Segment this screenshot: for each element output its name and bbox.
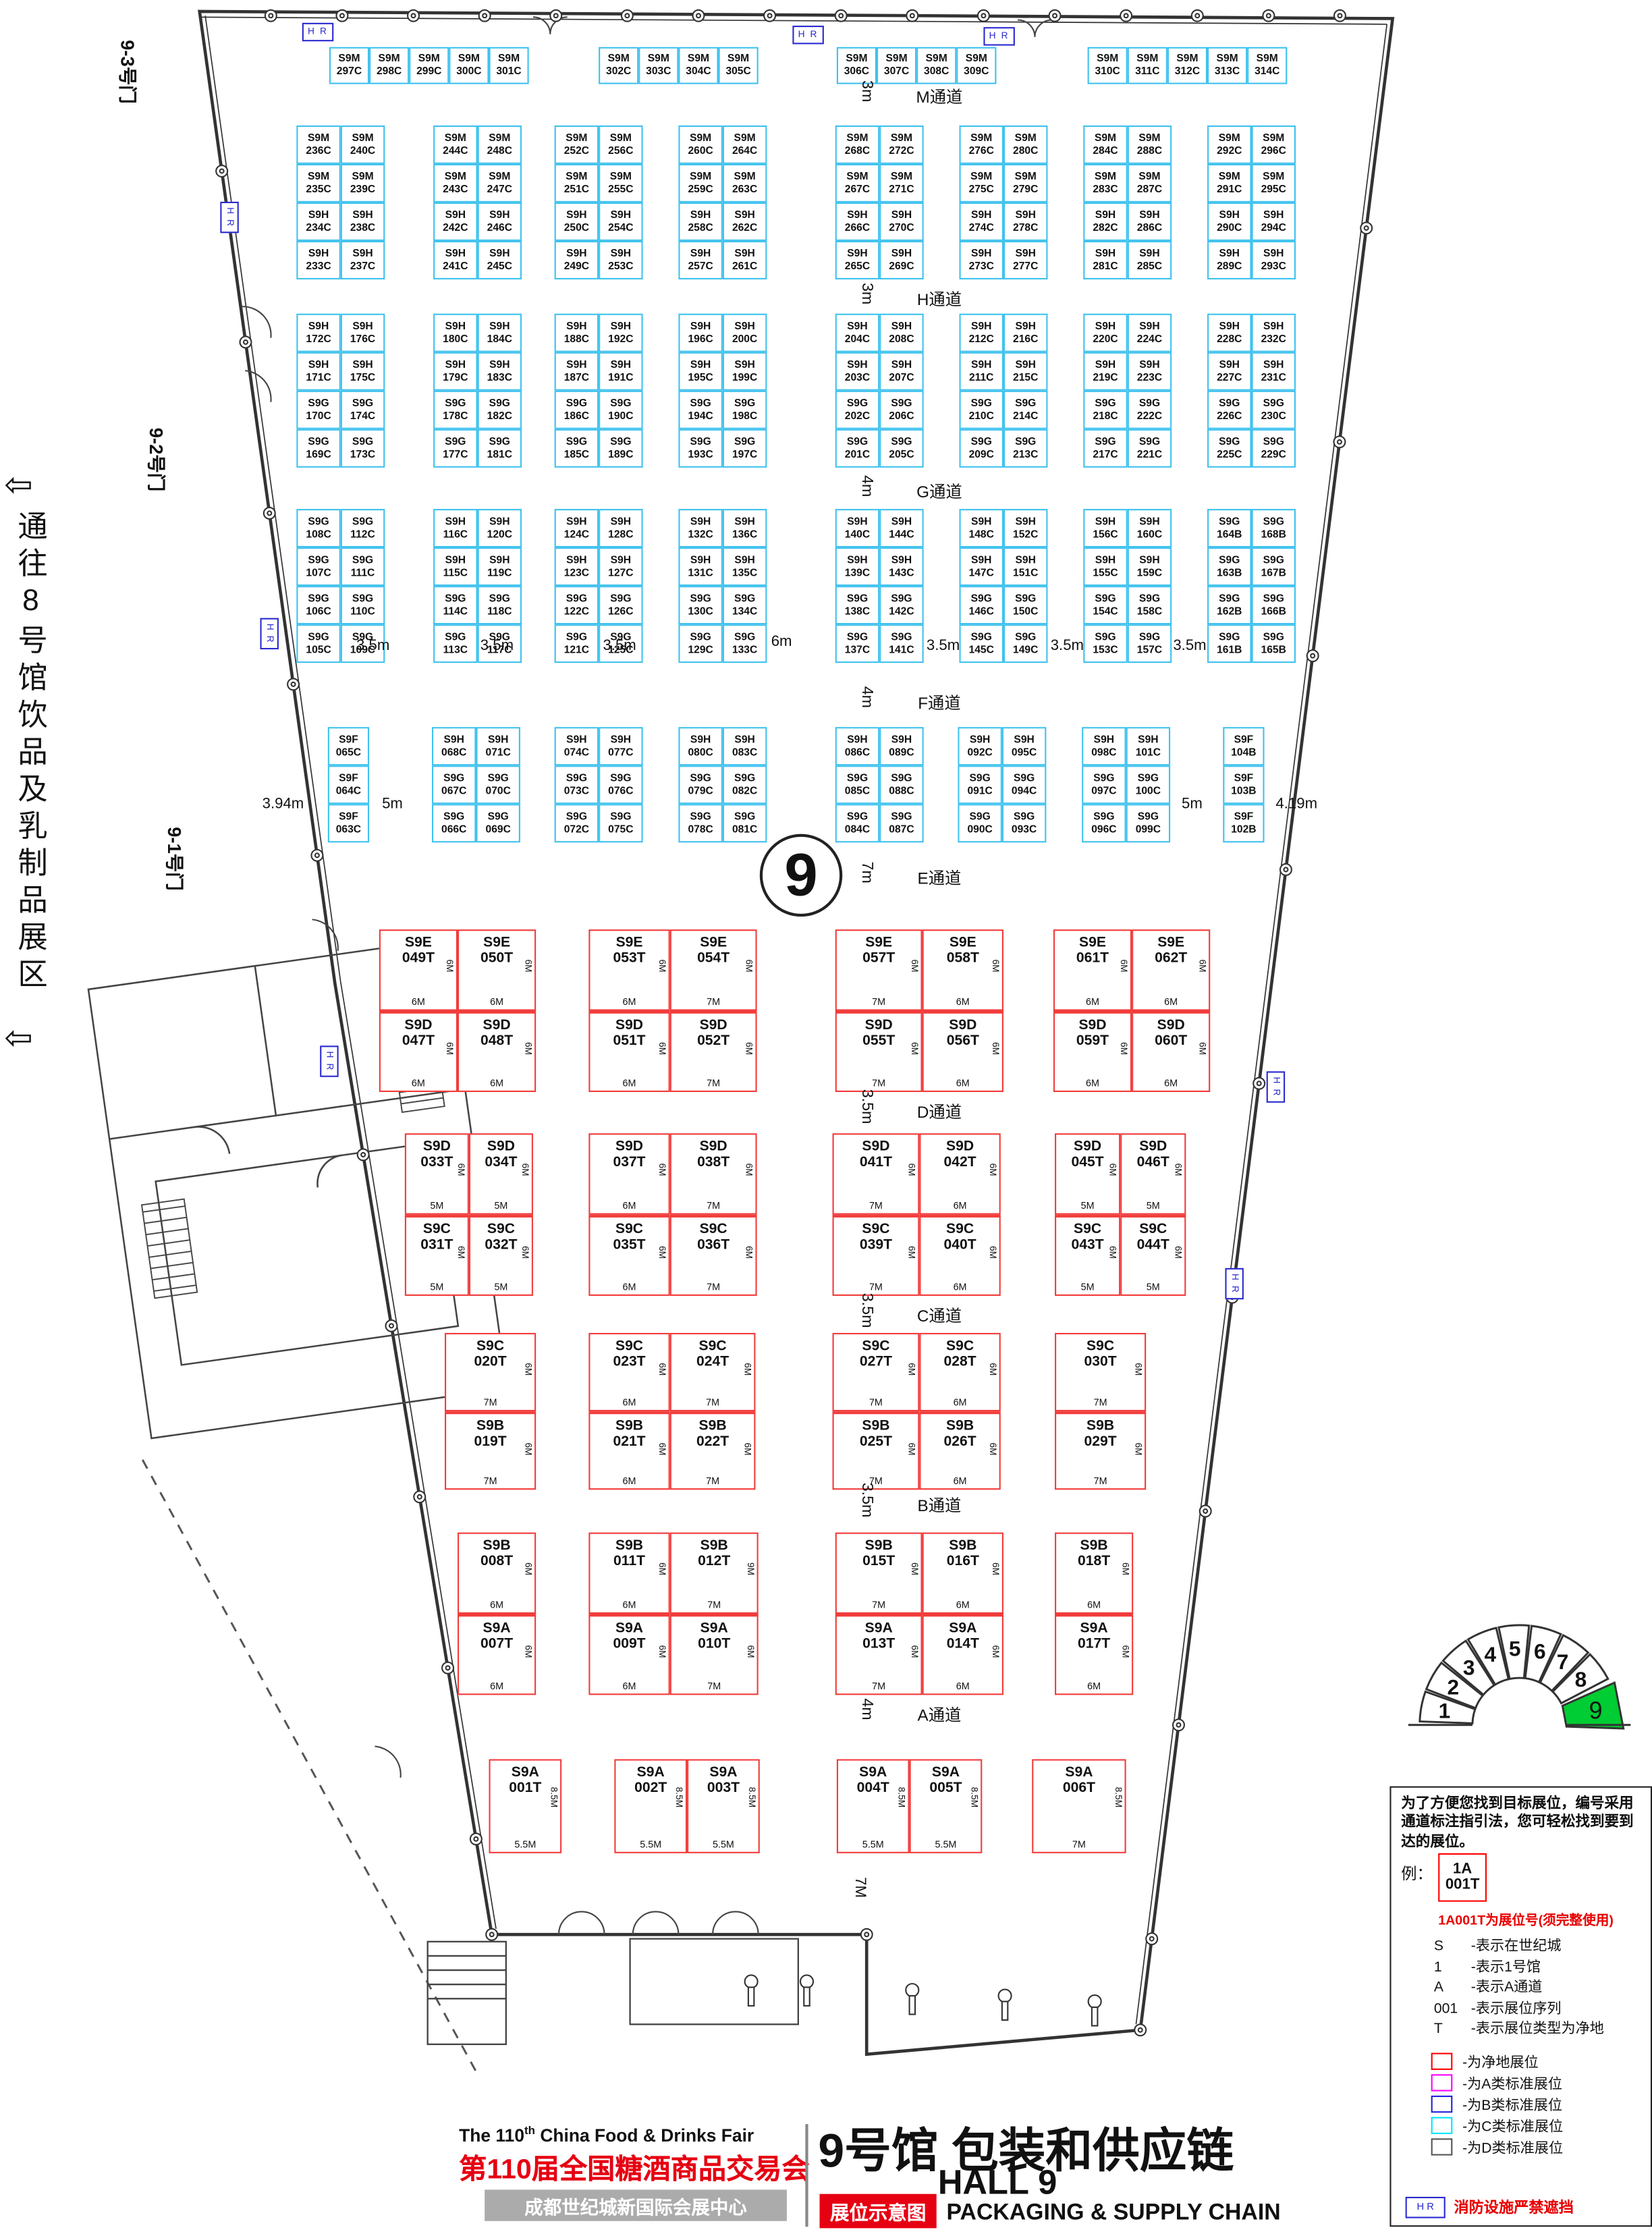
booth-cell-standard: S9M283C [1083,164,1127,202]
booth-cell-standard: S9H257C [678,241,722,279]
booth-cell-standard: S9H147C [960,547,1003,586]
booth-cell-standard: S9H184C [478,314,522,352]
booth-cell-standard: S9H237C [341,241,385,279]
booth-cell-standard: S9G206C [879,391,923,429]
booth-cell-standard: S9M275C [960,164,1003,202]
booth-cell-standard: S9H261C [723,241,767,279]
booth-cell-net: S9E050T6M6M [458,929,536,1010]
fire-hydrant-marker: H R [302,23,333,41]
booth-cell-standard: S9G158C [1128,586,1172,624]
aisle-width-dim: 4m [858,680,875,715]
booth-cell-standard: S9M276C [960,126,1003,164]
booth-cell-net: S9E061T6M6M [1053,929,1132,1010]
plan-tag: 展位示意图 [820,2194,937,2229]
venue-name: 成都世纪城新国际会展中心 [485,2189,787,2221]
booth-cell-standard: S9H220C [1083,314,1127,352]
booth-cell-standard: S9M311C [1128,47,1167,84]
booth-cell-net: S9D033T6M5M [405,1133,469,1214]
booth-cell-standard: S9M297C [329,47,369,84]
booth-cell-standard: S9H074C [555,727,599,765]
fire-hydrant-marker: H R [1406,2197,1445,2218]
booth-cell-standard: S9H136C [723,509,767,547]
booth-cell-standard: S9M268C [835,126,879,164]
booth-cell-net: S9D034T6M5M [469,1133,533,1214]
booth-cell-net: S9D038T6M7M [670,1133,757,1214]
booth-cell-standard: S9G165B [1252,624,1296,663]
booth-cell-standard: S9H246C [478,202,522,241]
booth-cell-standard: S9H192C [599,314,642,352]
booth-cell-net: S9B015T6M7M [835,1533,923,1614]
class-color-swatch [1431,2117,1453,2133]
booth-cell-standard: S9H101C [1126,727,1170,765]
booth-cell-standard: S9H277C [1003,241,1047,279]
example-booth-row1: 1A [1453,1861,1472,1877]
booth-cell-standard: S9G091C [958,765,1001,804]
booth-cell-standard: S9G167B [1252,547,1296,586]
booth-cell-standard: S9H135C [723,547,767,586]
booth-cell-standard: S9H127C [599,547,642,586]
booth-cell-standard: S9G097C [1082,765,1126,804]
booth-cell-standard: S9H156C [1083,509,1127,547]
booth-cell-standard: S9G170C [296,391,340,429]
booth-cell-standard: S9H171C [296,352,340,391]
booth-cell-standard: S9M236C [296,126,340,164]
booth-cell-standard: S9F102B [1223,804,1264,842]
booth-cell-net: S9C031T6M5M [405,1215,469,1296]
booth-cell-standard: S9H285C [1128,241,1172,279]
booth-cell-net: S9E053T6M6M [588,929,669,1010]
booth-cell-standard: S9G189C [599,429,642,468]
booth-cell-standard: S9H232C [1252,314,1296,352]
booth-cell-standard: S9G194C [678,391,722,429]
booth-cell-standard: S9G230C [1252,391,1296,429]
booth-cell-standard: S9H290C [1207,202,1251,241]
legend-class-row: -为A类标准展位 [1431,2071,1562,2093]
booth-cell-standard: S9M247C [478,164,522,202]
booth-cell-standard: S9H208C [879,314,923,352]
booth-cell-standard: S9H224C [1128,314,1172,352]
booth-cell-net: S9B029T6M7M [1055,1411,1146,1490]
class-color-swatch [1431,2137,1453,2154]
booth-cell-standard: S9H266C [835,202,879,241]
booth-cell-standard: S9G126C [599,586,642,624]
legend-code-row: 1-表示1号馆 [1434,1954,1541,1976]
booth-cell-net: S9C020T6M7M [445,1333,536,1411]
booth-cell-standard: S9M300C [449,47,489,84]
booth-cell-standard: S9G178C [433,391,477,429]
booth-cell-standard: S9H098C [1082,727,1126,765]
fire-hydrant-marker: H R [983,27,1014,45]
booth-cell-net: S9C032T6M5M [469,1215,533,1296]
booth-cell-net: S9B016T6M6M [923,1533,1003,1614]
booth-cell-standard: S9G218C [1083,391,1127,429]
booth-cell-net: S9C043T6M5M [1055,1215,1120,1296]
booth-cell-standard: S9H071C [476,727,520,765]
booth-cell-standard: S9H183C [478,352,522,391]
booth-cell-standard: S9M252C [555,126,599,164]
booth-cell-standard: S9H080C [678,727,722,765]
booth-cell-net: S9A017T6M6M [1055,1614,1133,1695]
aisle-label: H通道 [887,288,992,311]
booth-cell-standard: S9H245C [478,241,522,279]
fire-hydrant-marker: H R [1267,1071,1285,1102]
booth-cell-standard: S9G073C [555,765,599,804]
adjacent-hall-note: 通往8号馆饮品及乳制品展区 [9,510,51,995]
booth-cell-standard: S9G225C [1207,429,1251,468]
booth-cell-net: S9B025T6M7M [833,1411,920,1490]
booth-cell-standard: S9H216C [1003,314,1047,352]
aisle-width-dim: 3m [858,277,875,311]
fire-hydrant-marker: H R [260,618,278,649]
booth-cell-standard: S9G087C [879,804,923,842]
booth-cell-standard: S9G142C [879,586,923,624]
booth-cell-net: S9A005T8.5M5.5M [910,1759,983,1853]
dimension-label: 3.5m [603,637,636,654]
dimension-label: 7M [852,1877,869,1898]
booth-cell-standard: S9M256C [599,126,642,164]
svg-text:6: 6 [1534,1639,1546,1663]
booth-cell-standard: S9H191C [599,352,642,391]
booth-cell-standard: S9G093C [1002,804,1046,842]
booth-cell-standard: S9G181C [478,429,522,468]
booth-cell-standard: S9G118C [478,586,522,624]
booth-cell-net: S9D048T6M6M [458,1011,536,1092]
booth-cell-standard: S9G096C [1082,804,1126,842]
booth-cell-standard: S9H068C [432,727,476,765]
booth-cell-standard: S9G110C [341,586,385,624]
booth-cell-net: S9B026T6M6M [919,1411,1000,1490]
title-block: The 110th China Food & Drinks Fair 第110届… [453,2119,1338,2233]
fire-warning: 消防设施严禁遮挡 [1454,2197,1573,2218]
booth-cell-standard: S9H238C [341,202,385,241]
aisle-width-dim: 3.5m [858,1483,875,1517]
booth-cell-net: S9D056T6M6M [923,1011,1003,1092]
booth-cell-net: S9D042T6M6M [919,1133,1000,1214]
left-arrow-icon: ⇦ [4,465,32,506]
booth-cell-standard: S9H219C [1083,352,1127,391]
booth-cell-standard: S9H120C [478,509,522,547]
booth-cell-net: S9E057T6M7M [835,929,923,1010]
booth-cell-standard: S9H223C [1128,352,1172,391]
booth-cell-standard: S9M284C [1083,126,1127,164]
booth-cell-standard: S9M291C [1207,164,1251,202]
booth-cell-standard: S9H152C [1003,509,1047,547]
booth-cell-standard: S9M243C [433,164,477,202]
booth-cell-net: S9D041T6M7M [833,1133,920,1214]
booth-cell-standard: S9M304C [678,47,718,84]
booth-cell-standard: S9G163B [1207,547,1251,586]
hall-number-circle: 9 [760,834,843,917]
booth-cell-standard: S9H199C [723,352,767,391]
booth-cell-standard: S9G162B [1207,586,1251,624]
class-color-swatch [1431,2073,1453,2090]
booth-cell-standard: S9H281C [1083,241,1127,279]
legend-example-label: 例： [1401,1862,1432,1885]
legend-code-row: S-表示在世纪城 [1434,1933,1562,1955]
booth-cell-standard: S9G070C [476,765,520,804]
booth-cell-standard: S9H265C [835,241,879,279]
aisle-label: F通道 [887,691,992,714]
booth-cell-standard: S9G094C [1002,765,1046,804]
booth-cell-net: S9E049T6M6M [379,929,458,1010]
legend-box: 为了方便您找到目标展位，编号采用通道标注指引法，您可轻松找到要到达的展位。 例：… [1389,1787,1652,2227]
booth-cell-standard: S9G069C [476,804,520,842]
booth-cell-standard: S9H083C [723,727,767,765]
title-divider [805,2124,808,2227]
booth-cell-standard: S9G197C [723,429,767,468]
booth-cell-standard: S9H086C [835,727,879,765]
booth-cell-standard: S9H077C [599,727,642,765]
svg-text:8: 8 [1575,1667,1587,1691]
booth-cell-standard: S9M305C [719,47,759,84]
gate-label: 9-2号门 [144,428,171,492]
booth-cell-standard: S9M309C [956,47,996,84]
booth-cell-standard: S9M303C [638,47,678,84]
booth-cell-standard: S9H212C [960,314,1003,352]
booth-cell-standard: S9M248C [478,126,522,164]
fair-title-cn: 第110届全国糖酒商品交易会 [459,2146,810,2187]
booth-cell-standard: S9H294C [1252,202,1296,241]
svg-text:9: 9 [1589,1697,1603,1724]
booth-cell-standard: S9G161B [1207,624,1251,663]
booth-cell-standard: S9G201C [835,429,879,468]
booth-cell-standard: S9M280C [1003,126,1047,164]
booth-cell-standard: S9H175C [341,352,385,391]
booth-cell-standard: S9H140C [835,509,879,547]
booth-cell-standard: S9H196C [678,314,722,352]
booth-cell-standard: S9H203C [835,352,879,391]
booth-cell-standard: S9G198C [723,391,767,429]
booth-cell-standard: S9G112C [341,509,385,547]
booth-cell-standard: S9G186C [555,391,599,429]
booth-cell-standard: S9G085C [835,765,879,804]
booth-cell-standard: S9G217C [1083,429,1127,468]
booth-cell-net: S9A001T8.5M5.5M [489,1759,561,1853]
dimension-label: 3.5m [480,637,514,654]
aisle-width-dim: 3.5m [858,1089,875,1124]
class-color-swatch [1431,2095,1453,2112]
booth-cell-standard: S9M272C [879,126,923,164]
booth-cell-net: S9D046T6M5M [1120,1133,1186,1214]
booth-cell-standard: S9H160C [1128,509,1172,547]
legend-intro: 为了方便您找到目标展位，编号采用通道标注指引法，您可轻松找到要到达的展位。 [1401,1795,1643,1852]
booth-cell-standard: S9M296C [1252,126,1296,164]
booth-cell-standard: S9G111C [341,547,385,586]
booth-cell-standard: S9H241C [433,241,477,279]
booth-cell-net: S9B021T6M6M [588,1411,669,1490]
booth-cell-standard: S9H195C [678,352,722,391]
aisle-label: M通道 [887,86,992,109]
booth-cell-standard: S9G121C [555,624,599,663]
booth-cell-standard: S9G107C [296,547,340,586]
legend-code-row: 001-表示展位序列 [1434,1995,1562,2017]
booth-cell-standard: S9H215C [1003,352,1047,391]
booth-cell-net: S9E058T6M6M [923,929,1003,1010]
booth-cell-standard: S9G168B [1252,509,1296,547]
booth-cell-standard: S9F065C [328,727,369,765]
booth-cell-standard: S9H131C [678,547,722,586]
booth-cell-standard: S9H148C [960,509,1003,547]
booth-cell-standard: S9G130C [678,586,722,624]
legend-class-row: -为B类标准展位 [1431,2093,1562,2115]
aisle-label: E通道 [887,867,992,890]
booth-cell-standard: S9G150C [1003,586,1047,624]
booth-cell-standard: S9G193C [678,429,722,468]
booth-cell-standard: S9H172C [296,314,340,352]
booth-cell-net: S9A009T6M6M [588,1614,669,1695]
booth-cell-standard: S9G182C [478,391,522,429]
booth-cell-standard: S9G226C [1207,391,1251,429]
booth-cell-standard: S9H282C [1083,202,1127,241]
aisle-label: C通道 [887,1305,992,1328]
legend-class-row: -为净地展位 [1431,2050,1539,2071]
booth-cell-standard: S9H179C [433,352,477,391]
dimension-label: 5m [382,796,403,813]
booth-cell-net: S9A003T8.5M5.5M [687,1759,760,1853]
booth-cell-standard: S9H231C [1252,352,1296,391]
booth-cell-net: S9D045T6M5M [1055,1133,1120,1214]
booth-cell-standard: S9G106C [296,586,340,624]
booth-cell-net: S9B008T6M6M [458,1533,536,1614]
booth-cell-standard: S9G079C [678,765,722,804]
booth-cell-standard: S9M298C [369,47,409,84]
booth-cell-standard: S9G145C [960,624,1003,663]
hall-number: 9 [784,841,817,909]
booth-cell-standard: S9M307C [877,47,916,84]
booth-cell-standard: S9H155C [1083,547,1127,586]
booth-cell-net: S9C027T6M7M [833,1333,920,1411]
booth-cell-standard: S9H278C [1003,202,1047,241]
booth-cell-standard: S9G108C [296,509,340,547]
booth-cell-standard: S9H176C [341,314,385,352]
booth-cell-standard: S9H188C [555,314,599,352]
booth-cell-standard: S9G075C [599,804,642,842]
booth-cell-standard: S9G081C [723,804,767,842]
booth-cell-standard: S9H250C [555,202,599,241]
booth-cell-standard: S9F064C [328,765,369,804]
booth-cell-net: S9A007T6M6M [458,1614,536,1695]
booth-cell-net: S9C040T6M6M [919,1215,1000,1296]
booth-cell-standard: S9M260C [678,126,722,164]
booth-cell-net: S9C044T6M5M [1120,1215,1186,1296]
booth-cell-standard: S9M255C [599,164,642,202]
gate-label: 9-3号门 [115,40,142,104]
fire-hydrant-marker: H R [792,26,823,44]
booth-cell-standard: S9G209C [960,429,1003,468]
booth-cell-standard: S9G113C [433,624,477,663]
booth-cell-net: S9A002T8.5M5.5M [614,1759,687,1853]
booth-cell-net: S9D051T6M6M [588,1011,669,1092]
booth-cell-standard: S9M301C [489,47,528,84]
booth-cell-standard: S9H115C [433,547,477,586]
booth-cell-net: S9A013T6M7M [835,1614,923,1695]
svg-text:1: 1 [1439,1699,1451,1723]
booth-cell-net: S9D047T6M6M [379,1011,458,1092]
dimension-label: 3.5m [1173,637,1206,654]
booth-cell-standard: S9G169C [296,429,340,468]
legend-code-row: A-表示A通道 [1434,1974,1543,1996]
booth-cell-standard: S9G205C [879,429,923,468]
booth-cell-net: S9E054T6M7M [670,929,757,1010]
booth-cell-net: S9C023T6M6M [588,1333,669,1411]
booth-cell-standard: S9H144C [879,509,923,547]
booth-cell-standard: S9G214C [1003,391,1047,429]
booth-cell-standard: S9G078C [678,804,722,842]
booth-cell-standard: S9M239C [341,164,385,202]
booth-cell-standard: S9H092C [958,727,1001,765]
gate-label: 9-1号门 [163,827,190,891]
fire-hydrant-marker: H R [320,1045,338,1077]
booth-cell-standard: S9H227C [1207,352,1251,391]
booth-cell-standard: S9M264C [723,126,767,164]
booth-cell-standard: S9G221C [1128,429,1172,468]
booth-cell-standard: S9H258C [678,202,722,241]
booth-cell-standard: S9M279C [1003,164,1047,202]
booth-cell-net: S9C024T6M7M [670,1333,756,1411]
booth-cell-standard: S9H119C [478,547,522,586]
booth-cell-standard: S9H228C [1207,314,1251,352]
booth-cell-net: S9C036T6M7M [670,1215,757,1296]
legend-example-booth: 1A 001T [1438,1853,1487,1902]
booth-cell-standard: S9M288C [1128,126,1172,164]
booth-cell-standard: S9G164B [1207,509,1251,547]
booth-cell-net: S9A010T6M7M [670,1614,759,1695]
booth-cell-standard: S9F104B [1223,727,1264,765]
booth-cell-standard: S9G129C [678,624,722,663]
legend-note: 1A001T为展位号(须完整使用) [1438,1909,1614,1929]
booth-cell-standard: S9G210C [960,391,1003,429]
booth-cell-standard: S9G088C [879,765,923,804]
booth-cell-net: S9D059T6M6M [1053,1011,1132,1092]
class-color-swatch [1431,2052,1453,2069]
booth-cell-standard: S9G166B [1252,586,1296,624]
hall-title-en: HALL 9 [938,2164,1057,2204]
booth-cell-standard: S9G076C [599,765,642,804]
booth-cell-standard: S9G177C [433,429,477,468]
aisle-label: G通道 [887,481,992,503]
booth-cell-standard: S9H128C [599,509,642,547]
aisle-width-dim: 4m [858,469,875,503]
booth-cell-standard: S9M314C [1247,47,1287,84]
halls-overview-minimap: 123456789 [1408,1625,1631,1728]
booth-cell-standard: S9H254C [599,202,642,241]
booth-cell-net: S9B012T9M7M [670,1533,759,1614]
booth-cell-standard: S9H151C [1003,547,1047,586]
dimension-label: 3.5m [927,637,960,654]
aisle-width-dim: 3m [858,74,875,109]
booth-cell-net: S9A004T8.5M5.5M [837,1759,910,1853]
booth-cell-standard: S9H200C [723,314,767,352]
booth-cell-standard: S9M271C [879,164,923,202]
booth-cell-standard: S9M310C [1088,47,1128,84]
aisle-width-dim: 4m [858,1692,875,1726]
booth-cell-standard: S9H089C [879,727,923,765]
left-arrow-icon: ⇦ [4,1018,32,1059]
booth-cell-standard: S9G154C [1083,586,1127,624]
legend-class-row: -为D类标准展位 [1431,2135,1564,2157]
booth-cell-standard: S9M267C [835,164,879,202]
booth-cell-standard: S9H269C [879,241,923,279]
booth-cell-standard: S9G149C [1003,624,1047,663]
fire-hydrant-marker: H R [220,202,238,233]
booth-cell-standard: S9H289C [1207,241,1251,279]
booth-cell-net: S9C035T6M6M [588,1215,669,1296]
booth-cell-net: S9C039T6M7M [833,1215,920,1296]
booth-cell-standard: S9H242C [433,202,477,241]
booth-cell-net: S9A006T8.5M7M [1032,1759,1126,1853]
aisle-width-dim: 7m [858,855,875,890]
booth-cell-standard: S9M244C [433,126,477,164]
